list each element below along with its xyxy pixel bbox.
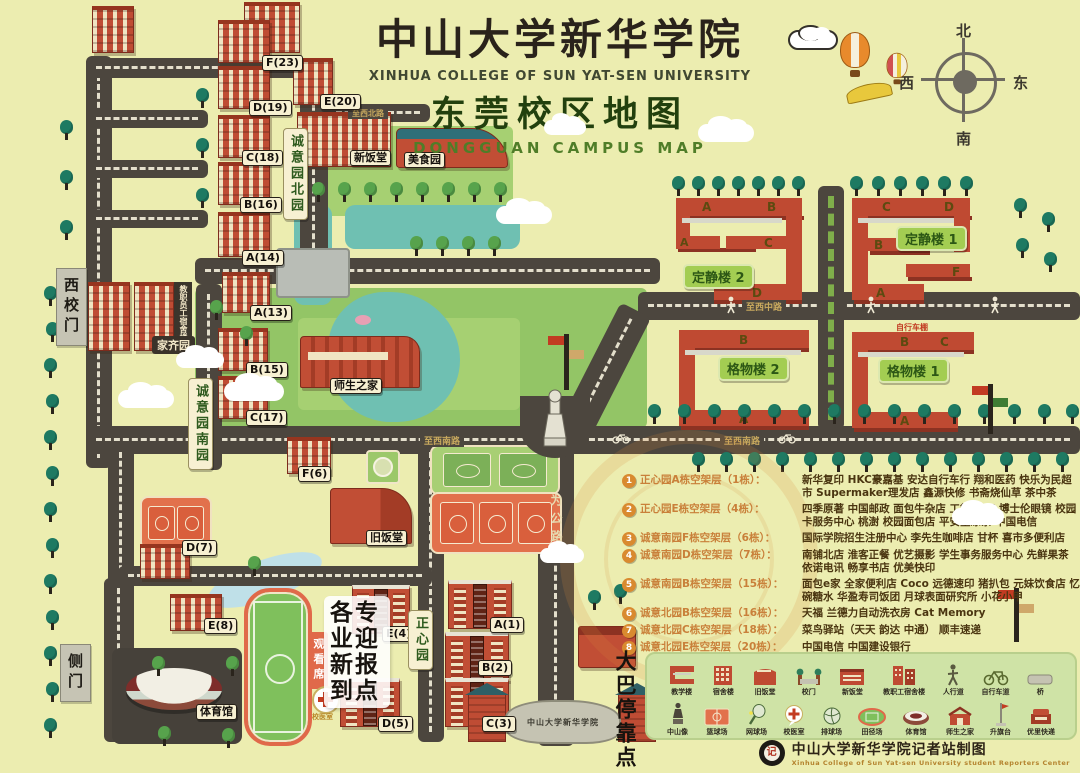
- area-label-zhengxin: 正心园: [408, 610, 433, 670]
- svg-text:C: C: [940, 335, 949, 349]
- legend-icon-label: 中山像: [667, 727, 688, 737]
- tree-icon: [960, 176, 974, 196]
- legend-item-number: 2: [622, 503, 636, 517]
- cloud-icon: [788, 30, 838, 50]
- legend-icon-label: 优里快递: [1027, 727, 1055, 737]
- legend-item-shops: 面包e家 全家便利店 Coco 远德速印 猪扒包 元妹饮食店 忆碗糖水 华盈寿司…: [802, 578, 1080, 604]
- svg-text:F: F: [952, 265, 960, 279]
- building-label-a14: A(14): [242, 250, 284, 266]
- teaching-complex-dingjing2: A B A C D: [672, 192, 812, 310]
- cloud-icon: [540, 548, 584, 563]
- tree-icon: [708, 404, 722, 424]
- tree-icon: [46, 394, 60, 414]
- flagpole-icon: [993, 700, 1009, 726]
- tree-icon: [44, 430, 58, 450]
- legend-icon-label: 宿舍楼: [713, 687, 734, 697]
- legend-list-item: 3诚意南园F栋空架层（6栋）：国际学院招生注册中心 李先生咖啡店 甘杯 喜市多便…: [622, 532, 1080, 546]
- tree-icon: [46, 466, 60, 486]
- tree-icon: [410, 236, 424, 256]
- legend-list-item: 7诚意北园C栋空架层（18栋）：菜鸟驿站（天天 韵达 中通） 顺丰速递: [622, 624, 1080, 638]
- campus-map: 至西北路 至西中路 至西南路 至西南路 为公路 中山大学新华学院 XINHUA …: [0, 0, 1080, 773]
- credit-subtext: Xinhua College of Sun Yat-sen University…: [792, 759, 1070, 767]
- walk-icon: [946, 660, 960, 686]
- side-gate-label: 侧门: [60, 644, 91, 702]
- tree-icon: [226, 656, 240, 676]
- road-label-zhongxi: 至西中路: [742, 300, 786, 313]
- tree-icon: [46, 682, 60, 702]
- staff-dorm-building: [88, 282, 130, 351]
- legend-item-number: 4: [622, 549, 636, 563]
- tree-icon: [60, 120, 74, 140]
- cloud-icon: [176, 352, 224, 368]
- gate-icon: [796, 660, 822, 686]
- tree-icon: [894, 176, 908, 196]
- tree-icon: [1056, 452, 1070, 472]
- legend-item-name: 诚意北园C栋空架层（18栋）：: [640, 624, 802, 637]
- tree-icon: [858, 404, 872, 424]
- legend-item-name: 诚意南园B栋空架层（15栋）：: [640, 578, 802, 591]
- tree-icon: [196, 138, 210, 158]
- svg-text:A: A: [876, 286, 886, 300]
- legend-list-item: 5诚意南园B栋空架层（15栋）：面包e家 全家便利店 Coco 远德速印 猪扒包…: [622, 578, 1080, 604]
- road-label-xinan-1: 至西南路: [420, 434, 464, 447]
- cloud-icon: [698, 124, 754, 142]
- tree-icon: [938, 176, 952, 196]
- tree-icon: [672, 176, 686, 196]
- tree-icon: [732, 176, 746, 196]
- legend-icon-label: 新饭堂: [842, 687, 863, 697]
- dorm-icon: [712, 660, 734, 686]
- legend-icon-label: 旧饭堂: [755, 687, 776, 697]
- tree-icon: [888, 452, 902, 472]
- legend-icon-label: 自行车道: [982, 687, 1010, 697]
- bus-stop-label: 大巴停靠点: [610, 650, 640, 770]
- road-top-4: [86, 210, 208, 228]
- legend-item-name: 诚意南园D栋空架层（7栋）：: [640, 549, 802, 562]
- lily-icon: [355, 315, 371, 325]
- tennis-icon: [747, 700, 767, 726]
- gym-label: 体育馆: [196, 704, 237, 720]
- building-label-a1: A(1): [490, 617, 524, 633]
- building-label-c3: C(3): [482, 716, 516, 732]
- road-top-3: [86, 160, 208, 178]
- building-label-c17: C(17): [246, 410, 287, 426]
- tree-icon: [1014, 198, 1028, 218]
- signpost-icon: [548, 330, 584, 390]
- tree-icon: [248, 556, 262, 576]
- tree-icon: [196, 188, 210, 208]
- tree-icon: [60, 220, 74, 240]
- svg-text:A: A: [680, 236, 689, 249]
- tree-icon: [46, 538, 60, 558]
- building-label-d19: D(19): [249, 100, 292, 116]
- clinic-icon: [783, 700, 805, 726]
- clinic-label: 校医室: [312, 712, 333, 722]
- football-field: [244, 588, 312, 746]
- legend-icon-teach: 教学楼: [669, 657, 695, 697]
- legend-item-number: 3: [622, 532, 636, 546]
- legend-icon-label: 升旗台: [990, 727, 1011, 737]
- legend-icon-label: 体育馆: [906, 727, 927, 737]
- pedestrian-icon: [726, 296, 736, 314]
- newcanteen-icon: [839, 660, 865, 686]
- title-en: XINHUA COLLEGE OF SUN YAT-SEN UNIVERSITY: [325, 69, 795, 84]
- tree-icon: [972, 452, 986, 472]
- tree-icon: [752, 176, 766, 196]
- legend-icon-label: 排球场: [821, 727, 842, 737]
- tree-icon: [692, 176, 706, 196]
- credit-text: 中山大学新华学院记者站制图: [792, 739, 1070, 759]
- legend-icon-bball: 篮球场: [704, 697, 730, 737]
- vball-icon: [822, 700, 842, 726]
- building-label-a13: A(13): [250, 305, 292, 321]
- legend-item-number: 6: [622, 607, 636, 621]
- tree-icon: [196, 88, 210, 108]
- tree-icon: [738, 404, 752, 424]
- tree-icon: [442, 182, 456, 202]
- area-label-staff-dorm: 教职员工宿舍楼: [177, 285, 189, 341]
- credit: 中山大学新华学院记者站制图 Xinhua College of Sun Yat-…: [759, 739, 1070, 767]
- tree-icon: [44, 358, 58, 378]
- legend-icon-stadium: 体育馆: [902, 697, 930, 737]
- cloud-icon: [224, 382, 284, 401]
- cloud-icon: [952, 508, 1004, 525]
- svg-text:B: B: [767, 200, 776, 214]
- bicycle-icon: [778, 432, 796, 444]
- tree-icon: [792, 176, 806, 196]
- tree-icon: [918, 404, 932, 424]
- oldcanteen-icon: [752, 660, 778, 686]
- svg-text:D: D: [944, 200, 954, 214]
- legend-icon-staffdorm: 教职工宿舍楼: [883, 657, 925, 697]
- teacher-student-home-label: 师生之家: [330, 378, 382, 394]
- tree-icon: [390, 182, 404, 202]
- legend-item-number: 5: [622, 578, 636, 592]
- svg-text:B: B: [900, 335, 909, 349]
- legend-icon-label: 田径场: [862, 727, 883, 737]
- volleyball-court: [366, 450, 400, 484]
- building-label-c18: C(18): [242, 150, 283, 166]
- tree-icon: [494, 182, 508, 202]
- tree-icon: [798, 404, 812, 424]
- tree-icon: [678, 404, 692, 424]
- svg-text:A: A: [702, 200, 712, 214]
- tree-icon: [888, 404, 902, 424]
- tree-icon: [44, 646, 58, 666]
- svg-text:D: D: [752, 286, 762, 300]
- bike-icon: [983, 660, 1009, 686]
- hot-air-balloon-icon: [887, 53, 908, 85]
- legend-list-item: 1正心园A栋空架层（1栋）：新华复印 HKC豪嘉基 安达自行车行 翔和医药 快乐…: [622, 474, 1080, 500]
- svg-text:B: B: [739, 333, 748, 347]
- legend-icon-statue: 中山像: [667, 697, 688, 737]
- basketball-courts-2: [430, 492, 562, 554]
- legend-icon-vball: 排球场: [821, 697, 842, 737]
- sun-yat-sen-statue: [536, 386, 574, 450]
- road-right-vertical: [818, 186, 844, 430]
- legend-item-number: 7: [622, 624, 636, 638]
- tree-icon: [948, 404, 962, 424]
- legend-icon-flagpole: 升旗台: [990, 697, 1011, 737]
- svg-text:C: C: [764, 236, 773, 250]
- svg-text:C: C: [882, 200, 891, 214]
- tree-icon: [1066, 404, 1080, 424]
- tree-icon: [46, 610, 60, 630]
- west-gate-label: 西校门: [56, 268, 87, 346]
- area-label-north-garden: 诚意园北园: [283, 128, 308, 220]
- legend-icon-bike: 自行车道: [982, 657, 1010, 697]
- shops-legend-list: 1正心园A栋空架层（1栋）：新华复印 HKC豪嘉基 安达自行车行 翔和医药 快乐…: [622, 474, 1080, 658]
- tree-icon: [44, 502, 58, 522]
- tree-icon: [416, 182, 430, 202]
- legend-item-number: 1: [622, 474, 636, 488]
- svg-text:B: B: [874, 238, 883, 252]
- building-label-b2: B(2): [478, 660, 512, 676]
- tree-icon: [158, 726, 172, 746]
- legend-item-shops: 国际学院招生注册中心 李先生咖啡店 甘杯 喜市多便利店: [802, 532, 1080, 545]
- tree-icon: [488, 236, 502, 256]
- tree-icon: [944, 452, 958, 472]
- tree-icon: [804, 452, 818, 472]
- legend-icon-express: 优里快递: [1027, 697, 1055, 737]
- statue-icon: [671, 700, 685, 726]
- legend-icon-label: 师生之家: [946, 727, 974, 737]
- tree-icon: [712, 176, 726, 196]
- legend-icon-label: 人行道: [943, 687, 964, 697]
- legend-icon-track: 田径场: [858, 697, 886, 737]
- legend-item-name: 正心园E栋空架层（4栋）：: [640, 503, 802, 516]
- tree-icon: [240, 326, 254, 346]
- tree-icon: [860, 452, 874, 472]
- legend-icon-home: 师生之家: [946, 697, 974, 737]
- legend-icon-newcanteen: 新饭堂: [839, 657, 865, 697]
- tree-icon: [772, 176, 786, 196]
- legend-icon-label: 篮球场: [707, 727, 728, 737]
- old-canteen-label: 旧饭堂: [366, 530, 407, 546]
- tree-icon: [916, 176, 930, 196]
- teach-icon: [669, 660, 695, 686]
- compass-east: 东: [1013, 72, 1028, 93]
- tree-icon: [44, 718, 58, 738]
- legend-icon-tennis: 网球场: [746, 697, 767, 737]
- pedestrian-icon: [866, 296, 876, 314]
- compass-south: 南: [956, 128, 971, 149]
- legend-item-shops: 菜鸟驿站（天天 韵达 中通） 顺丰速递: [802, 624, 1080, 637]
- hot-air-balloon-icon: [840, 32, 870, 77]
- title-cn: 中山大学新华学院: [325, 6, 795, 67]
- legend-item-shops: 新华复印 HKC豪嘉基 安达自行车行 翔和医药 快乐为民超市 Supermake…: [802, 474, 1080, 500]
- tree-icon: [648, 404, 662, 424]
- pedestrian-icon: [990, 296, 1000, 314]
- tree-icon: [462, 236, 476, 256]
- legend-icon-label: 校门: [802, 687, 816, 697]
- home-window-band: [308, 352, 388, 360]
- main-gate-stone: 中山大学新华学院: [505, 700, 621, 744]
- tree-icon: [1038, 404, 1052, 424]
- tree-icon: [916, 452, 930, 472]
- legend-icon-bridge: 桥: [1027, 657, 1053, 697]
- tree-icon: [44, 574, 58, 594]
- cloud-icon: [544, 120, 586, 135]
- tree-icon: [768, 404, 782, 424]
- legend-icon-label: 教职工宿舍楼: [883, 687, 925, 697]
- express-icon: [1029, 700, 1053, 726]
- cloud-icon: [496, 206, 552, 224]
- building-label-e8: E(8): [204, 618, 237, 634]
- legend-icon-walk: 人行道: [943, 657, 964, 697]
- tree-icon: [436, 236, 450, 256]
- track-icon: [858, 700, 886, 726]
- compass: 北 南 西 东: [913, 30, 1013, 150]
- road-top-2: [86, 110, 208, 128]
- tree-icon: [312, 182, 326, 202]
- legend-item-shops: 四季原著 中国邮政 面包牛杂店 工行ATM 博士伦眼镜 校园卡服务中心 桃澍 校…: [802, 503, 1080, 529]
- legend-list-item: 2正心园E栋空架层（4栋）：四季原著 中国邮政 面包牛杂店 工行ATM 博士伦眼…: [622, 503, 1080, 529]
- legend-item-name: 诚意北园B栋空架层（16栋）：: [640, 607, 802, 620]
- badge-gewu2: 格物楼 2: [718, 356, 789, 381]
- tree-icon: [872, 176, 886, 196]
- building-label-b16: B(16): [240, 197, 282, 213]
- building-label-f23: F(23): [262, 55, 303, 71]
- tree-icon: [850, 176, 864, 196]
- teaching-complex-dingjing1: C D B E F A: [848, 192, 983, 310]
- badge-gewu1: 格物楼 1: [878, 358, 949, 383]
- tree-icon: [364, 182, 378, 202]
- staffdorm-icon: [891, 660, 917, 686]
- legend-icon-clinic: 校医室: [783, 697, 805, 737]
- legend-item-name: 诚意南园F栋空架层（6栋）：: [640, 532, 802, 545]
- legend-icon-label: 桥: [1037, 687, 1044, 697]
- legend-icon-dorm: 宿舍楼: [712, 657, 734, 697]
- tree-icon: [828, 404, 842, 424]
- map-legend-panel: 教学楼宿舍楼旧饭堂校门新饭堂教职工宿舍楼人行道自行车道桥 中山像篮球场网球场校医…: [645, 652, 1077, 740]
- legend-item-shops: 天福 兰德力自动洗衣房 Cat Memory: [802, 607, 1080, 620]
- legend-list-item: 4诚意南园D栋空架层（7栋）：南铺北店 淮客正餐 优艺摄影 学生事务服务中心 先…: [622, 549, 1080, 575]
- dorm-building: [92, 6, 134, 53]
- area-label-south-garden: 诚意园南园: [188, 378, 213, 470]
- tree-icon: [1000, 452, 1014, 472]
- tree-icon: [1028, 452, 1042, 472]
- legend-list-item: 6诚意北园B栋空架层（16栋）：天福 兰德力自动洗衣房 Cat Memory: [622, 607, 1080, 621]
- bridge-icon: [1027, 660, 1053, 686]
- building-label-d5: D(5): [378, 716, 413, 732]
- badge-dingjing2: 定静楼 2: [683, 264, 754, 289]
- legend-icon-label: 校医室: [784, 727, 805, 737]
- tree-icon: [338, 182, 352, 202]
- badge-dingjing1: 定静楼 1: [896, 226, 967, 251]
- stadium-icon: [902, 700, 930, 726]
- cloud-icon: [118, 390, 174, 408]
- legend-icon-label: 网球场: [746, 727, 767, 737]
- bicycle-icon: [612, 432, 630, 444]
- tree-icon: [222, 728, 236, 748]
- registration-sign: 各专业迎新报到点: [324, 596, 390, 708]
- legend-icon-label: 教学楼: [671, 687, 692, 697]
- home-icon: [948, 700, 972, 726]
- tree-icon: [1042, 212, 1056, 232]
- tree-icon: [468, 182, 482, 202]
- tree-icon: [1008, 404, 1022, 424]
- tree-icon: [1016, 238, 1030, 258]
- building-label-f6: F(6): [298, 466, 331, 482]
- tree-icon: [210, 300, 224, 320]
- reporter-station-logo: [759, 740, 785, 766]
- legend-item-shops: 南铺北店 淮客正餐 优艺摄影 学生事务服务中心 先鲜果茶 依诺电讯 畅享书店 优…: [802, 549, 1080, 575]
- bball-icon: [704, 700, 730, 726]
- tree-icon: [1044, 252, 1058, 272]
- tree-icon: [60, 170, 74, 190]
- tree-icon: [152, 656, 166, 676]
- legend-icon-oldcanteen: 旧饭堂: [752, 657, 778, 697]
- kite-icon: [845, 79, 893, 104]
- building-label-d7: D(7): [182, 540, 217, 556]
- bridge: [276, 248, 350, 298]
- signpost-icon: [972, 382, 1008, 434]
- tree-icon: [832, 452, 846, 472]
- legend-item-name: 正心园A栋空架层（1栋）：: [640, 474, 802, 487]
- legend-icon-gate: 校门: [796, 657, 822, 697]
- bike-shed-label: 自行车棚: [896, 322, 928, 333]
- compass-north: 北: [956, 20, 971, 41]
